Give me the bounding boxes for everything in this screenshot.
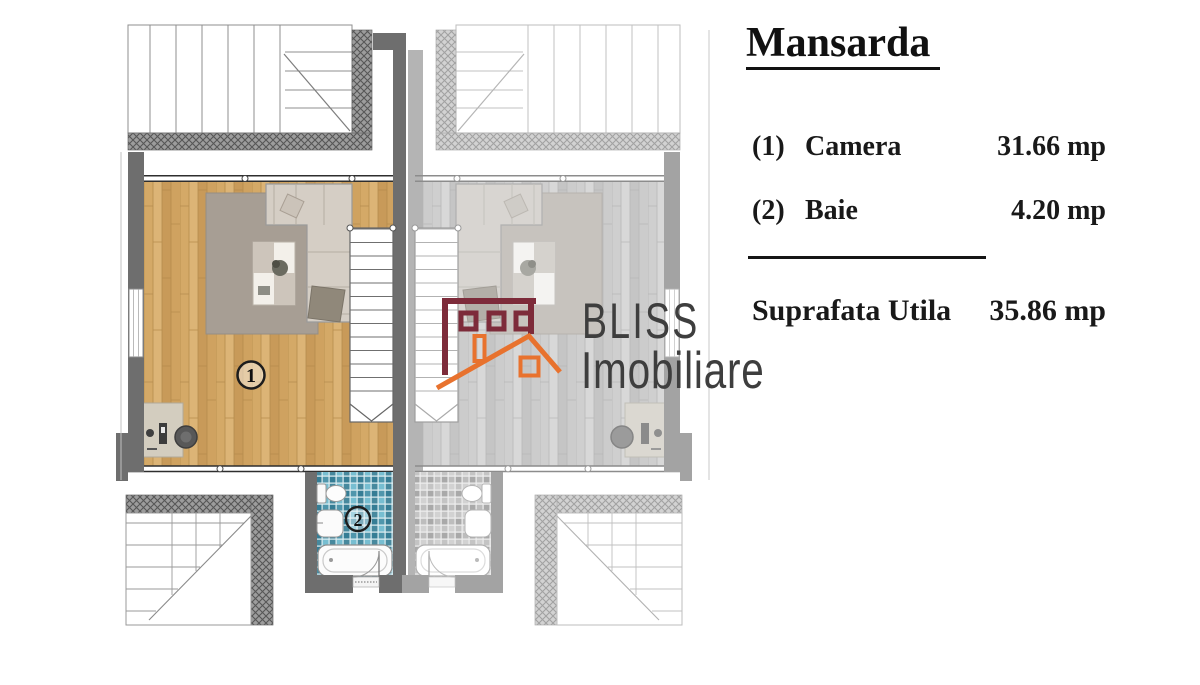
book [258, 286, 270, 295]
outer-wall-stub-left [116, 433, 128, 481]
stairwell-left [347, 225, 396, 422]
legend-divider [748, 256, 986, 259]
logo-subbrand-text: Imobiliare [581, 341, 765, 399]
window-left [129, 289, 143, 357]
legend-label-baie: Baie [805, 197, 1011, 225]
toilet [317, 484, 346, 503]
legend-num-2: (2) [752, 197, 805, 225]
room1-label: 1 [238, 362, 265, 389]
svg-text:Imobiliare: Imobiliare [581, 341, 765, 399]
stairwell-right [412, 225, 461, 422]
page-title: Mansarda [746, 20, 940, 70]
roof-bottom-left [126, 495, 273, 625]
legend-value-baie: 4.20 mp [1011, 197, 1106, 225]
door-threshold [353, 577, 379, 587]
page: 1 [0, 0, 1200, 685]
roof-bottom-right [535, 495, 682, 625]
throw-blanket [308, 286, 345, 322]
roof-top-left [128, 25, 372, 150]
legend-label-camera: Camera [805, 133, 997, 161]
room2-label: 2 [346, 507, 370, 531]
total-value: 35.86 mp [989, 296, 1106, 326]
legend-value-camera: 31.66 mp [997, 133, 1106, 161]
office-chair [175, 426, 197, 448]
bathroom-mirrored [402, 472, 503, 593]
svg-text:2: 2 [354, 510, 363, 530]
office-chair-mirrored [611, 426, 633, 448]
monitor [159, 423, 167, 444]
outer-wall-stub-right [680, 433, 692, 481]
bottom-wall [128, 466, 393, 472]
legend-row-camera: (1) Camera 31.66 mp [752, 133, 1106, 161]
bathroom-baie: 2 [305, 472, 406, 593]
total-row: Suprafata Utila 35.86 mp [752, 296, 1106, 326]
floor-plan: 1 [0, 0, 1200, 685]
bathtub [318, 545, 392, 576]
legend-num-1: (1) [752, 133, 805, 161]
total-label: Suprafata Utila [752, 296, 989, 326]
svg-text:1: 1 [246, 365, 256, 387]
roof-top-right [436, 25, 680, 150]
coffee-table-mirrored [513, 242, 555, 305]
legend-row-baie: (2) Baie 4.20 mp [752, 197, 1106, 225]
coffee-table [253, 242, 295, 305]
sink [317, 510, 343, 537]
left-unit: 1 [116, 25, 441, 625]
